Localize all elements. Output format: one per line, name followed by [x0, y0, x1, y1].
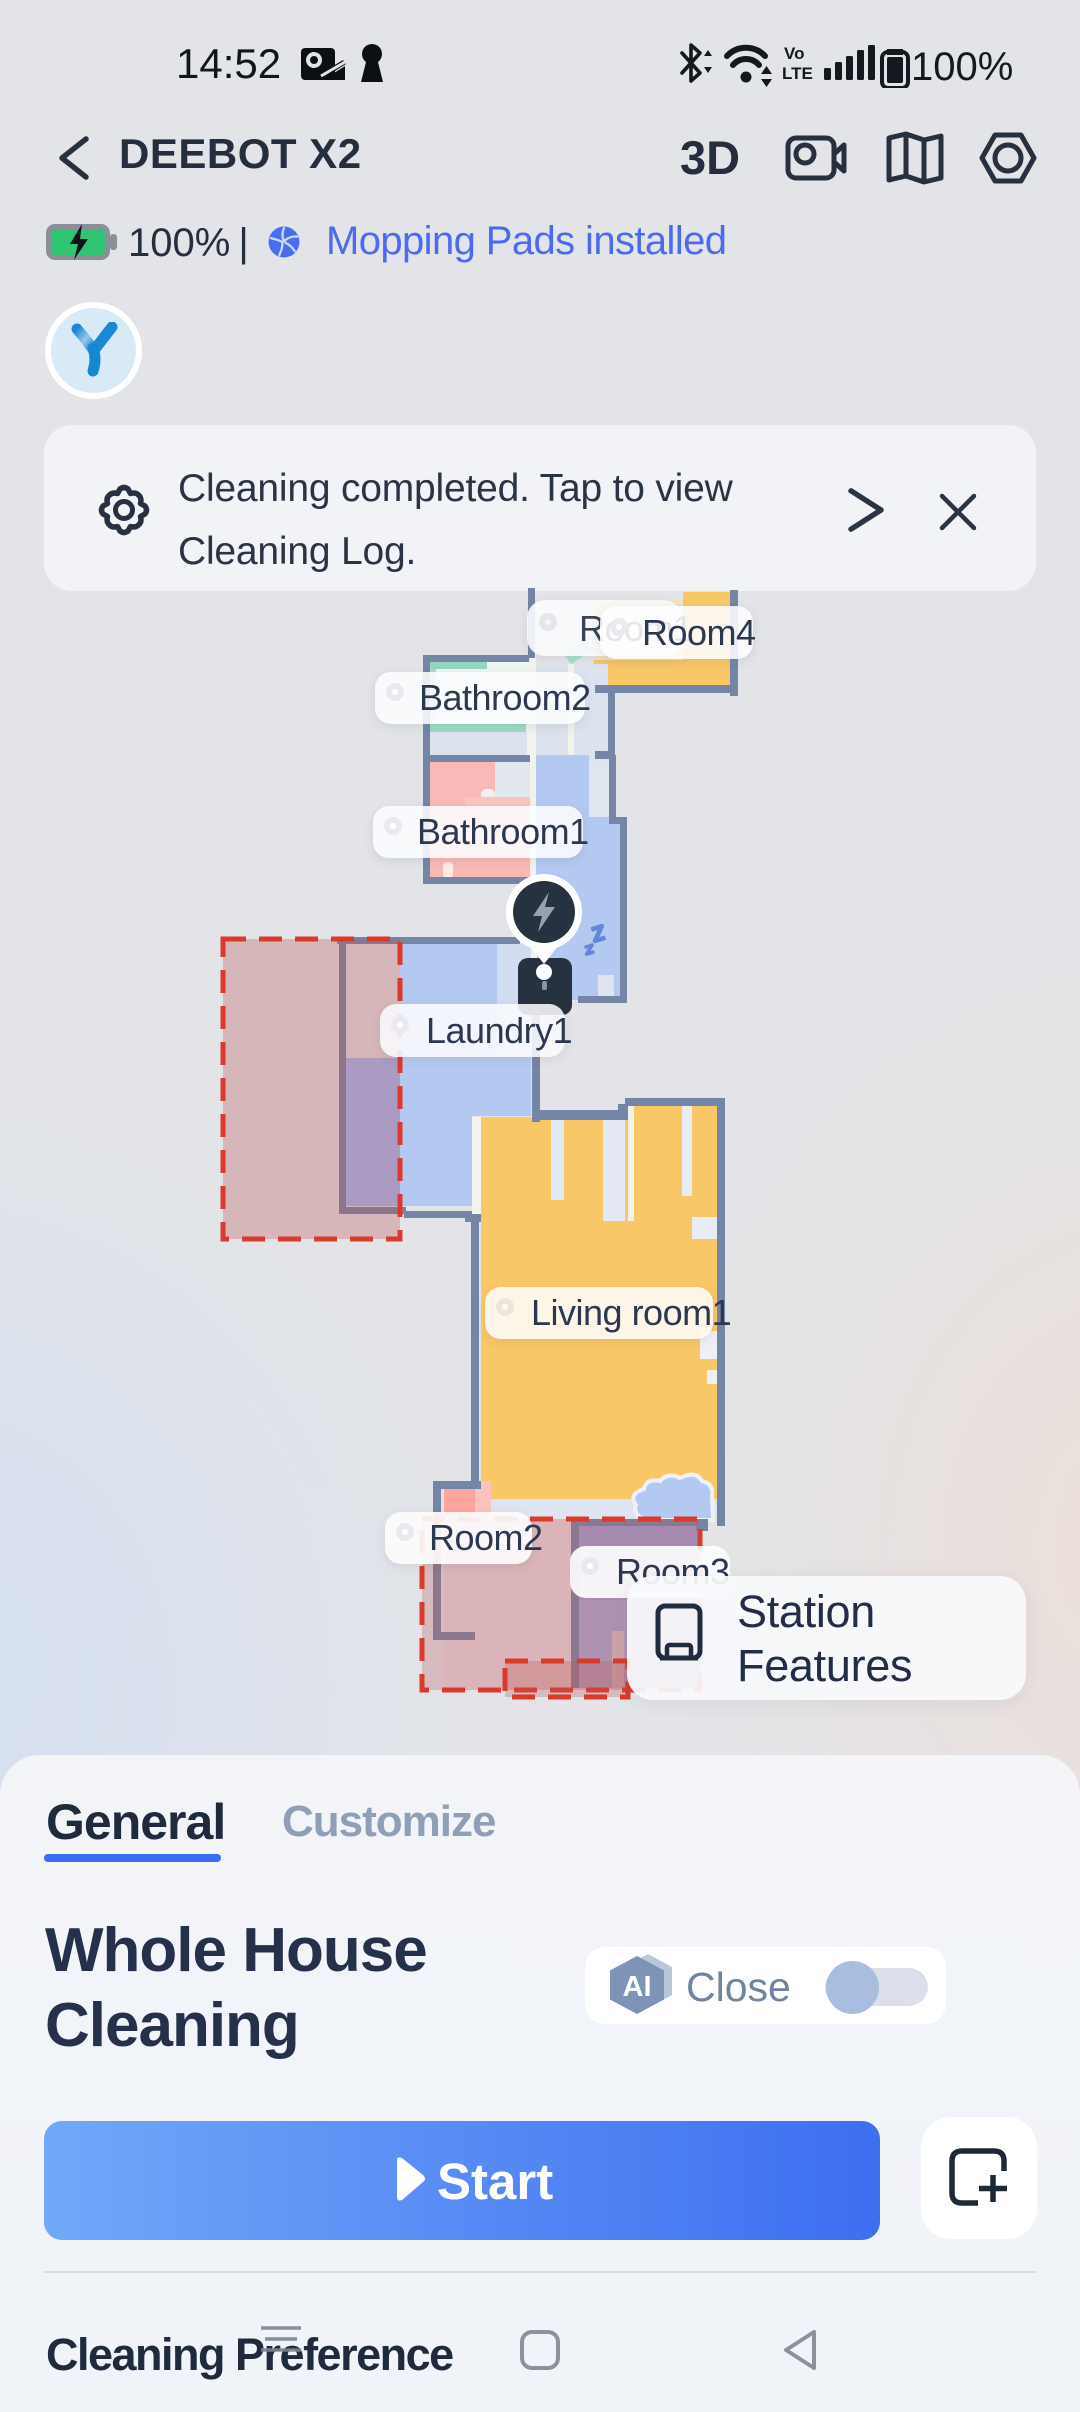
- svg-text:LTE: LTE: [782, 64, 813, 83]
- svg-text:Vo: Vo: [784, 44, 804, 63]
- svg-text:AI: AI: [623, 1971, 652, 2003]
